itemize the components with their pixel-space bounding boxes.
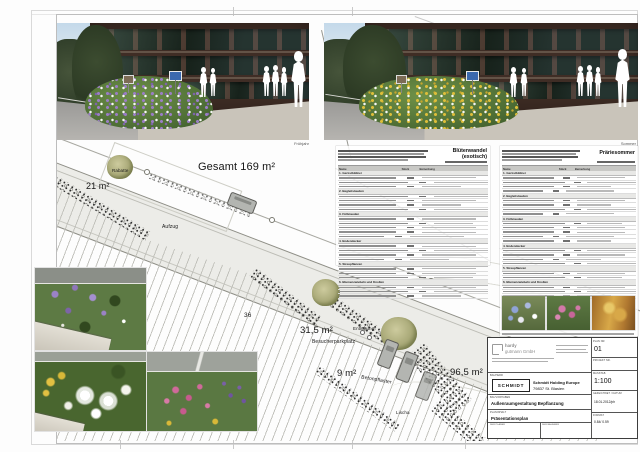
bauvorhaben-value: Außenraumgestaltung Bepflanzung bbox=[491, 401, 564, 406]
intro-text bbox=[502, 156, 578, 158]
format-value: 0.84/ 0.59 bbox=[594, 420, 609, 424]
plan-nr-value: 01 bbox=[594, 346, 602, 353]
street-sign bbox=[123, 75, 134, 84]
firm-address bbox=[556, 349, 586, 350]
intro-text bbox=[338, 150, 428, 152]
plant-table-praeriesommer: Präriesommer Name Stück Bemerkung 1. Ger… bbox=[500, 146, 638, 336]
footnote-text bbox=[502, 333, 634, 335]
person-silhouette bbox=[585, 65, 594, 96]
manhole-symbol bbox=[269, 217, 275, 223]
firm-logo-icon bbox=[492, 344, 503, 355]
tree-symbol bbox=[312, 279, 340, 306]
reference-photo-pink bbox=[547, 296, 590, 330]
col-qty: Stück bbox=[402, 167, 420, 171]
plan-label: Entlüftung bbox=[353, 326, 374, 331]
photo-planting-white bbox=[35, 352, 146, 431]
person-silhouette bbox=[199, 67, 208, 97]
person-silhouette bbox=[271, 65, 280, 96]
person-silhouette bbox=[509, 67, 518, 97]
intro-text bbox=[338, 156, 426, 158]
window-row bbox=[90, 29, 309, 49]
facade-ledge bbox=[365, 51, 638, 53]
paper-edge-left bbox=[31, 10, 32, 445]
person-silhouette bbox=[614, 49, 631, 107]
photo-rendering-spring bbox=[57, 23, 309, 140]
reference-photo-grasses bbox=[592, 296, 635, 330]
table-body: 1. Gerüstbildner2. Begleitstauden3. Füll… bbox=[338, 171, 488, 299]
projekt-nr-label: PROJEKT NR. bbox=[593, 359, 611, 362]
photo-planting-purple bbox=[35, 268, 146, 350]
curb bbox=[35, 410, 84, 431]
format-label: FORMAT bbox=[593, 414, 604, 417]
vent-symbol bbox=[367, 335, 372, 340]
bauvorhaben-label: BAUVORHABEN bbox=[490, 396, 510, 399]
street-sign bbox=[396, 75, 407, 84]
table-row bbox=[338, 294, 488, 298]
bauherr-sig-label: DER BAUHERR bbox=[542, 424, 559, 426]
client-logo: SCHMIDT bbox=[492, 379, 530, 392]
table-title: Blütenwandel (exotisch) bbox=[429, 149, 487, 160]
plant-table-bluetenwandel: Blütenwandel (exotisch) Name Stück Bemer… bbox=[336, 146, 490, 265]
table-subtitle bbox=[445, 161, 487, 163]
col-name: Name bbox=[338, 167, 402, 171]
paper-edge-bottom bbox=[31, 444, 637, 445]
reference-photo-blue bbox=[502, 296, 545, 330]
company-sign bbox=[169, 71, 182, 81]
table-subtitle bbox=[597, 161, 635, 163]
intro-text bbox=[502, 150, 580, 152]
client-city: 79837 St. Blasien bbox=[533, 386, 564, 391]
plan-label: 9 m² bbox=[337, 368, 356, 379]
intro-text bbox=[502, 159, 562, 161]
curb bbox=[35, 319, 110, 350]
photo-caption-spring: Frühjahr bbox=[275, 141, 309, 146]
col-qty: Stück bbox=[559, 167, 575, 171]
bauherr-label: BAUHERR bbox=[490, 374, 503, 377]
intro-text bbox=[338, 153, 424, 155]
intro-text bbox=[338, 159, 408, 161]
plan-label: 31,5 m² bbox=[300, 325, 333, 336]
planer-sig-label: DER PLANER bbox=[490, 424, 505, 426]
massstab-label: MASSTAB bbox=[593, 372, 605, 375]
intro-text bbox=[502, 153, 576, 155]
plan-nr-label: PLAN NR. bbox=[593, 340, 605, 343]
plan-label: Besucherparkplatz bbox=[312, 339, 355, 345]
col-note: Bemerkung bbox=[419, 167, 488, 171]
firm-tagline bbox=[492, 358, 554, 359]
plan-label: Gesamt 169 m² bbox=[198, 161, 275, 173]
firm-name: hardy bbox=[505, 343, 517, 348]
plan-label: Aufzug bbox=[162, 224, 178, 230]
firm-address bbox=[556, 352, 588, 353]
firm-name-2: gutmann GmbH bbox=[505, 349, 535, 354]
window-row bbox=[365, 29, 638, 49]
plan-label: 21 m² bbox=[86, 181, 110, 191]
plan-label: Lischa bbox=[396, 410, 410, 415]
person-silhouette bbox=[262, 66, 271, 96]
road-band bbox=[147, 352, 257, 372]
person-silhouette bbox=[594, 67, 602, 96]
col-name: Name bbox=[502, 167, 559, 171]
photo-rendering-summer bbox=[324, 23, 638, 140]
plan-label: 36 bbox=[244, 312, 251, 319]
person-silhouette bbox=[520, 68, 528, 96]
road-band bbox=[35, 352, 146, 362]
client-name: Schmidt Holding Europe bbox=[533, 380, 580, 385]
gezeichnet-value: 18.01.2012/ph bbox=[594, 400, 615, 404]
gezeichnet-label: GEZEICHNET / DATUM bbox=[593, 392, 635, 395]
company-sign bbox=[466, 71, 479, 81]
person-silhouette bbox=[576, 66, 585, 96]
table-body: 1. Gerüstbildner2. Begleitstauden3. Füll… bbox=[502, 171, 636, 299]
planinhalt-label: PLANINHALT bbox=[490, 411, 506, 414]
facade-ledge bbox=[90, 51, 309, 53]
paper-edge-top bbox=[31, 10, 637, 11]
plan-label: Rabatte bbox=[112, 168, 128, 173]
planinhalt-value: Präsentationsplan bbox=[491, 416, 528, 421]
table-title: Präriesommer bbox=[583, 151, 635, 157]
plan-label: 96,5 m² bbox=[450, 367, 483, 378]
person-silhouette bbox=[209, 68, 217, 96]
massstab-value: 1:100 bbox=[594, 378, 612, 385]
road-band bbox=[35, 268, 146, 284]
photo-planting-pink bbox=[147, 352, 257, 431]
tree-symbol bbox=[107, 155, 133, 179]
title-block: hardy gutmann GmbH BAUHERR SCHMIDT Schmi… bbox=[487, 337, 638, 439]
person-silhouette bbox=[280, 67, 288, 96]
col-note: Bemerkung bbox=[575, 167, 636, 171]
firm-tagline bbox=[492, 361, 548, 362]
firm-address bbox=[556, 345, 588, 346]
person-silhouette bbox=[290, 51, 307, 107]
